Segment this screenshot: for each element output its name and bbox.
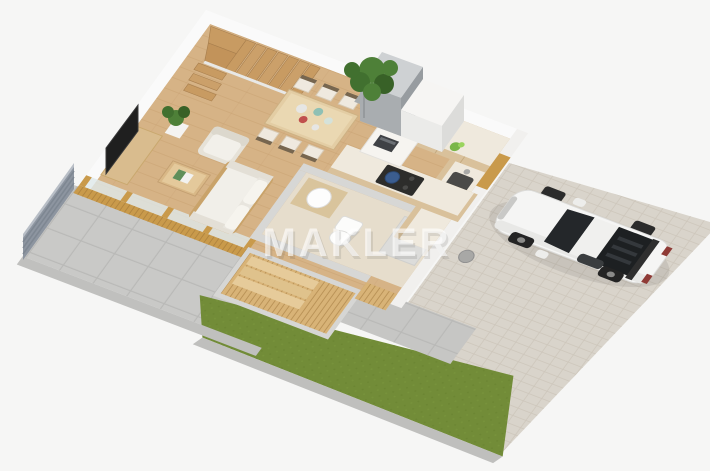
- floor-plan-svg: MAKLER MAKLER: [0, 0, 710, 471]
- watermark-text: MAKLER: [262, 221, 451, 265]
- floor-plan-render: MAKLER MAKLER: [0, 0, 710, 471]
